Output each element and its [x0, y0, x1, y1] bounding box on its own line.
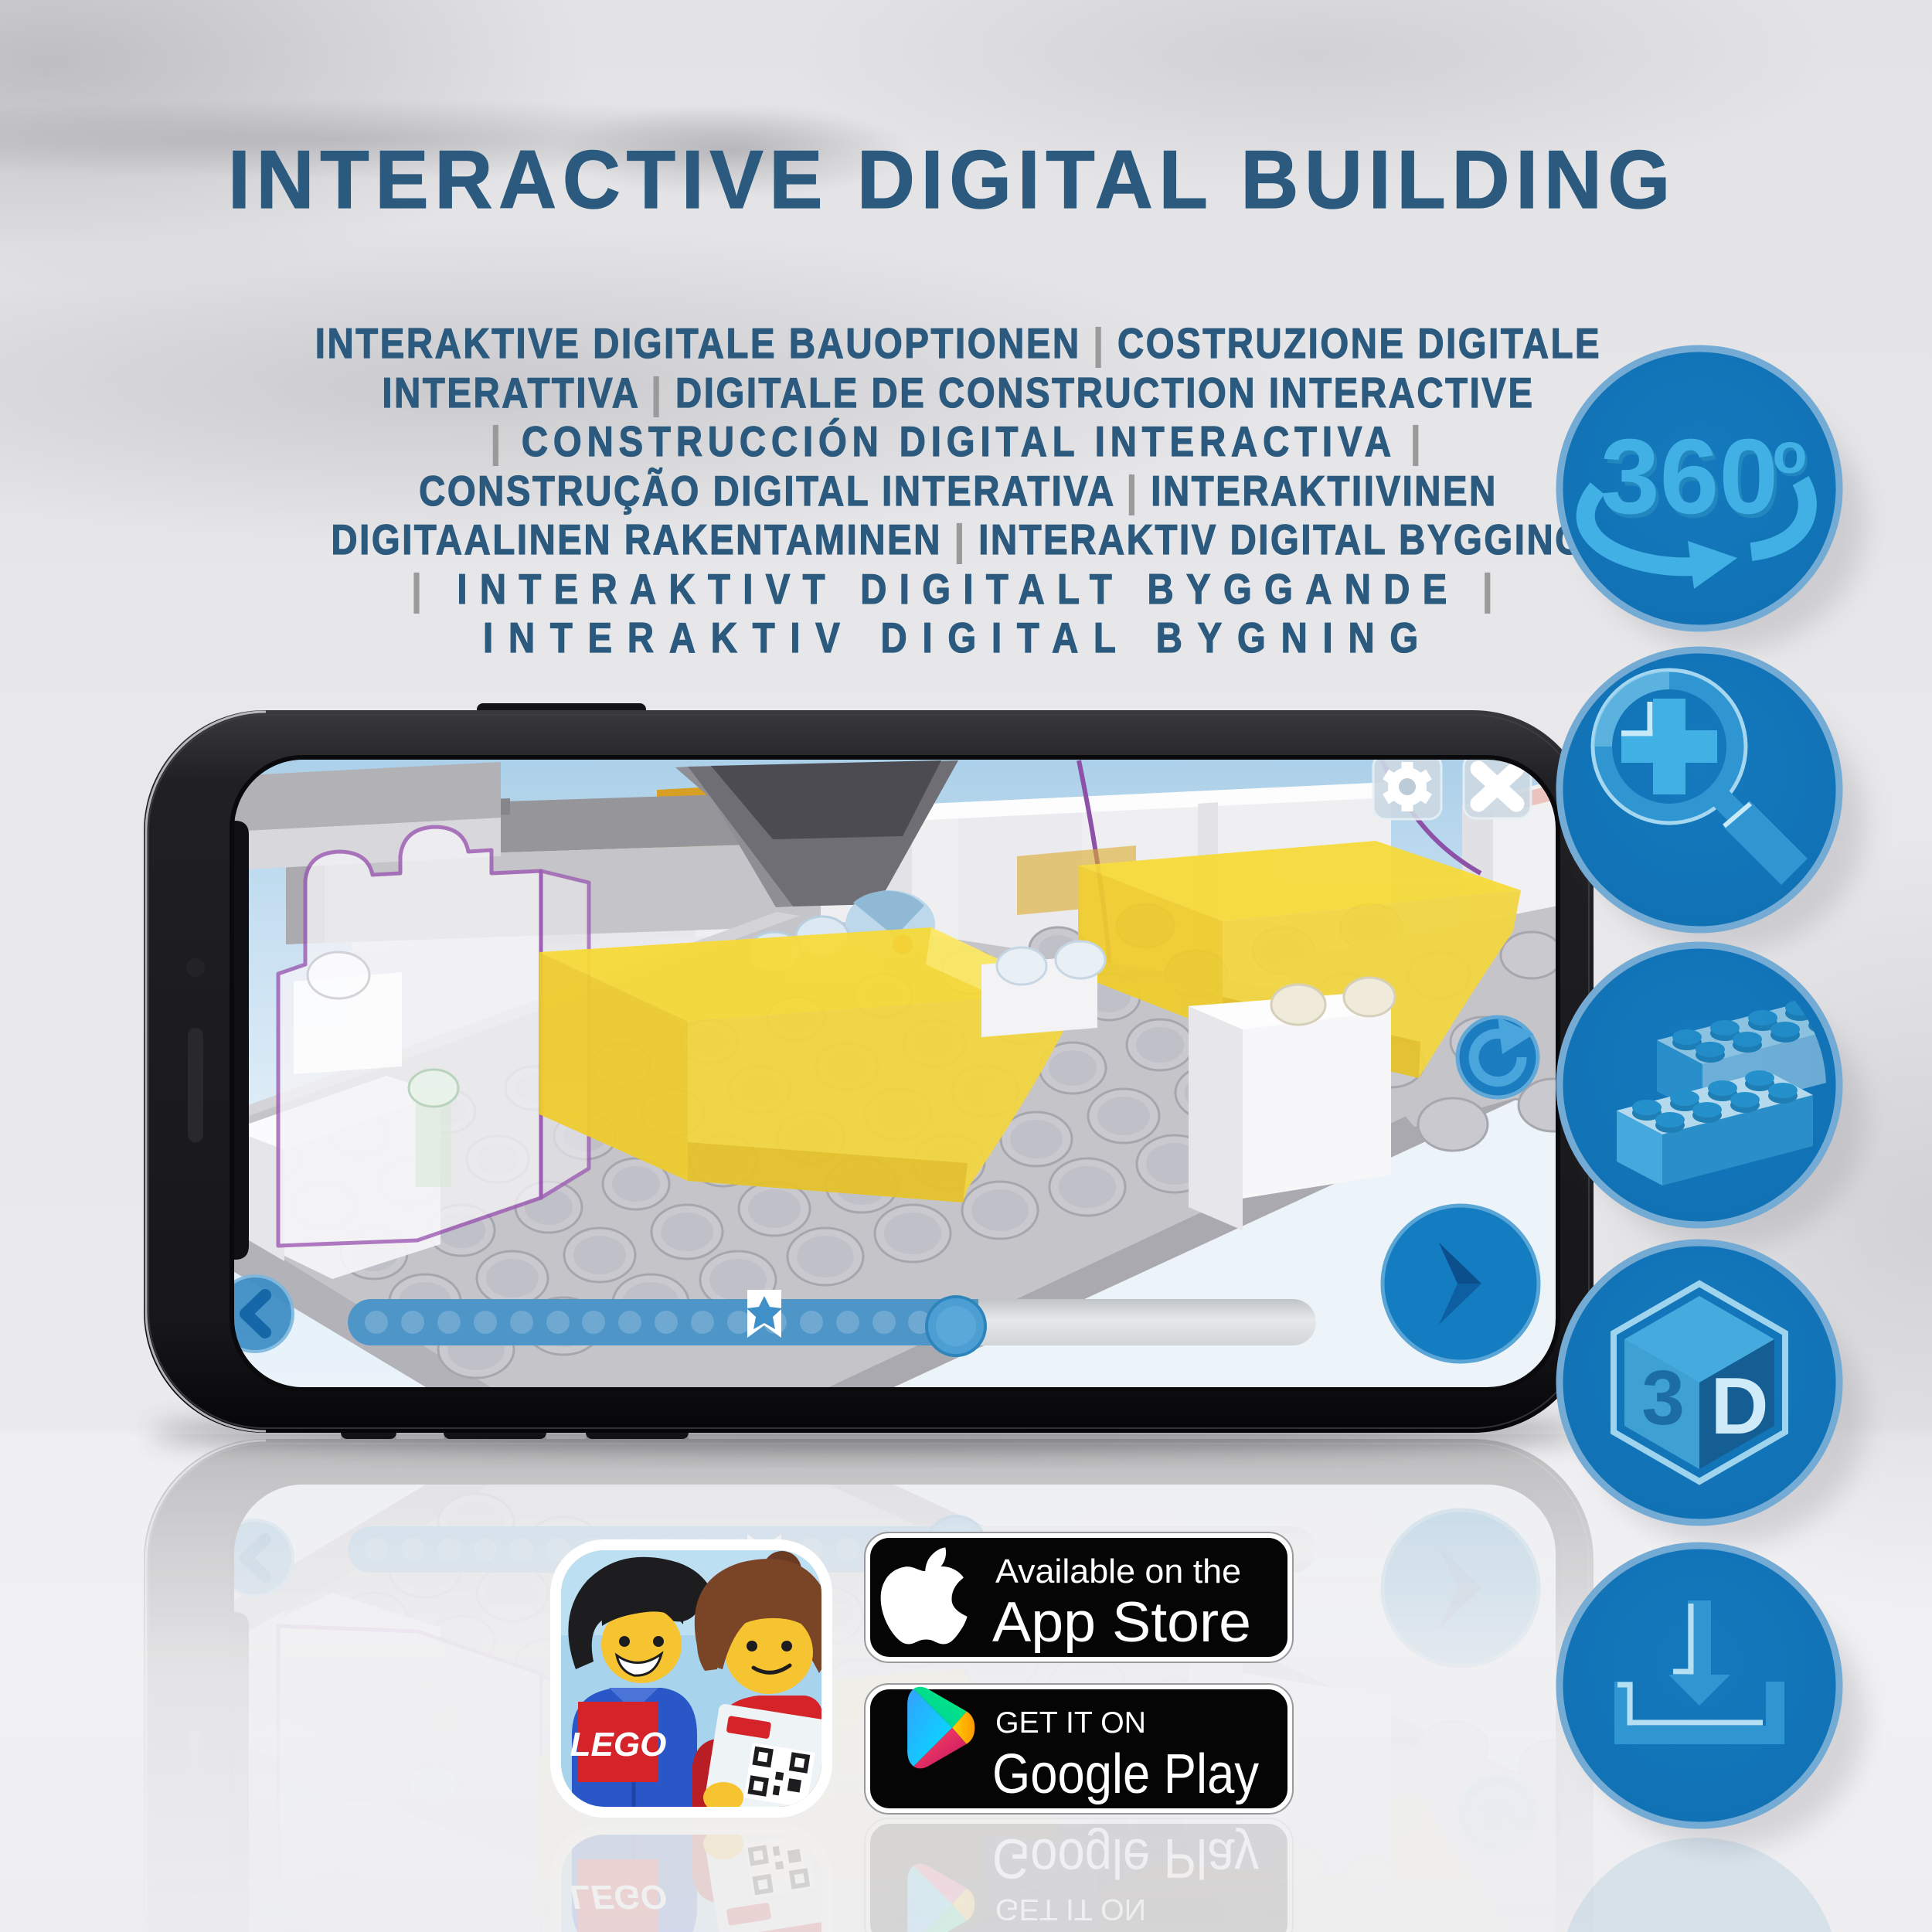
svg-text:Available on the: Available on the: [995, 1553, 1241, 1590]
svg-text:Google Play: Google Play: [992, 1743, 1259, 1805]
svg-text:GET IT ON: GET IT ON: [995, 1706, 1146, 1740]
svg-text:D: D: [1710, 1362, 1768, 1451]
svg-text:360: 360: [1600, 417, 1778, 536]
svg-text:App Store: App Store: [992, 1591, 1251, 1654]
svg-text:LEGO: LEGO: [570, 1726, 667, 1764]
svg-text:o: o: [1772, 421, 1807, 485]
svg-text:3: 3: [1641, 1355, 1685, 1441]
